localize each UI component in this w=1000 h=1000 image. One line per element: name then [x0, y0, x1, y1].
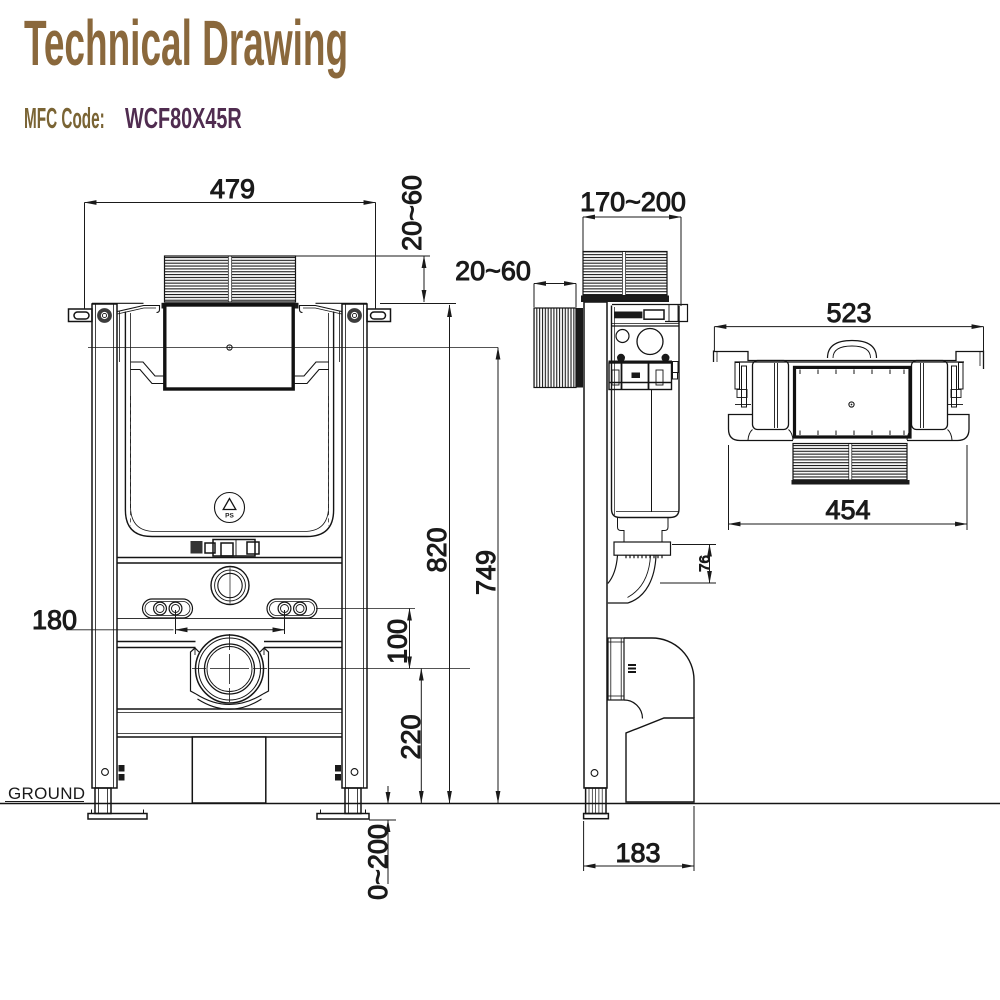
svg-text:523: 523	[826, 298, 871, 328]
svg-text:170~200: 170~200	[580, 187, 686, 217]
svg-text:180: 180	[32, 605, 77, 635]
svg-text:WCF80X45R: WCF80X45R	[125, 103, 242, 135]
svg-text:100: 100	[383, 619, 413, 664]
svg-text:749: 749	[471, 550, 501, 595]
svg-text:454: 454	[825, 495, 870, 525]
svg-text:20~60: 20~60	[455, 256, 531, 286]
svg-text:Technical Drawing: Technical Drawing	[24, 9, 348, 80]
svg-text:PS: PS	[225, 513, 234, 520]
svg-text:220: 220	[396, 714, 426, 759]
svg-text:183: 183	[615, 838, 660, 868]
svg-text:820: 820	[422, 527, 452, 572]
svg-text:479: 479	[210, 174, 255, 204]
svg-text:0~200: 0~200	[363, 824, 393, 900]
svg-text:MFC Code:: MFC Code:	[24, 102, 105, 135]
svg-text:20~60: 20~60	[397, 175, 427, 251]
svg-text:GROUND: GROUND	[8, 784, 85, 803]
svg-text:76: 76	[697, 555, 714, 572]
